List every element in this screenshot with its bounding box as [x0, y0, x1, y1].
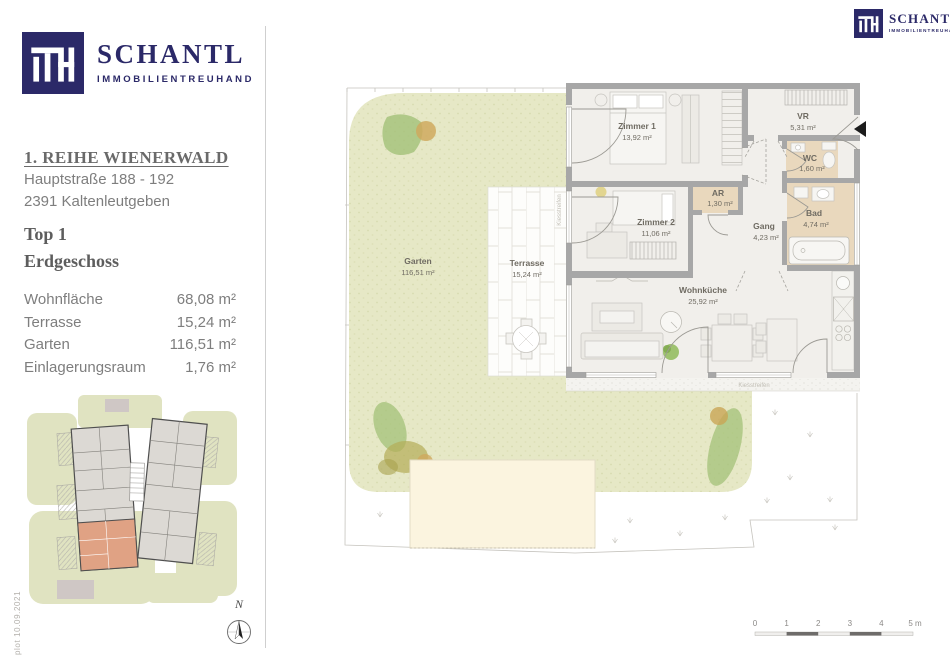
room-area-zimmer2: 11,06 m²	[641, 229, 671, 238]
site-building-left	[71, 425, 138, 571]
area-label: Einlagerungsraum	[24, 357, 185, 380]
gravel-strip-label: Kiesstreifen	[738, 383, 769, 389]
area-label: Terrasse	[24, 312, 177, 335]
address-block: Hauptstraße 188 - 192 2391 Kaltenleutgeb…	[24, 169, 174, 213]
room-area-vr: 5,31 m²	[790, 123, 816, 132]
room-label-zimmer1: Zimmer 1	[618, 121, 656, 131]
ith-monogram-small-icon	[854, 9, 883, 38]
area-label: Wohnfläche	[24, 289, 177, 312]
address-line1: Hauptstraße 188 - 192	[24, 169, 174, 191]
room-label-gang: Gang	[753, 221, 775, 231]
room-label-vr: VR	[797, 111, 809, 121]
room-label-ar: AR	[712, 188, 724, 198]
address-line2: 2391 Kaltenleutgeben	[24, 191, 174, 213]
unit-title: Top 1	[24, 221, 119, 248]
site-highlighted-unit	[78, 519, 138, 571]
scale-unit-label: 5 m	[908, 619, 922, 628]
room-label-terrasse: Terrasse	[510, 258, 545, 268]
room-area-wohnkueche: 25,92 m²	[688, 297, 718, 306]
area-row-einlagerungsraum: Einlagerungsraum 1,76 m²	[24, 357, 236, 380]
plot-date-note: plot 10.09.2021	[13, 591, 22, 655]
brand-logo: SCHANTL IMMOBILIENTREUHAND	[22, 32, 254, 94]
area-value: 1,76 m²	[185, 357, 236, 380]
scale-tick-1: 1	[784, 619, 789, 628]
floor-title: Erdgeschoss	[24, 248, 119, 275]
area-value: 15,24 m²	[177, 312, 236, 335]
room-area-zimmer1: 13,92 m²	[622, 133, 652, 142]
brand-name-small: SCHANTL	[889, 12, 950, 25]
room-label-wc: WC	[803, 153, 817, 163]
floor-plan: Kiesstreifen	[330, 75, 950, 655]
area-table: Wohnfläche 68,08 m² Terrasse 15,24 m² Ga…	[24, 289, 236, 379]
unit-block: Top 1 Erdgeschoss	[24, 221, 119, 275]
room-area-terrasse: 15,24 m²	[512, 270, 542, 279]
ith-monogram-icon	[22, 32, 84, 94]
area-value: 116,51 m²	[170, 334, 236, 357]
room-area-wc: 1,60 m²	[799, 164, 825, 173]
scale-tick-3: 3	[848, 619, 853, 628]
north-label: N	[234, 597, 244, 611]
facade-gravel-label: Kiesstreifen	[557, 194, 563, 225]
scale-tick-2: 2	[816, 619, 821, 628]
outbuilding	[410, 460, 595, 548]
area-row-terrasse: Terrasse 15,24 m²	[24, 312, 236, 335]
column-divider	[265, 26, 266, 648]
room-label-zimmer2: Zimmer 2	[637, 217, 675, 227]
area-label: Garten	[24, 334, 170, 357]
scale-tick-0: 0	[753, 619, 758, 628]
area-row-garten: Garten 116,51 m²	[24, 334, 236, 357]
site-stairs	[130, 463, 145, 501]
gravel-strip: Kiesstreifen	[566, 378, 860, 391]
brand-tagline-small: IMMOBILIENTREUHAND	[889, 28, 950, 33]
terrace-area	[488, 187, 567, 376]
room-area-ar: 1,30 m²	[707, 199, 733, 208]
brand-tagline: IMMOBILIENTREUHAND	[97, 74, 254, 85]
brand-name: SCHANTL	[97, 41, 254, 68]
expose-page: SCHANTL IMMOBILIENTREUHAND SCHANTL IMMOB…	[0, 0, 950, 671]
scale-bar: 0 1 2 3 4 5 m	[753, 619, 922, 636]
brand-logo-small: SCHANTL IMMOBILIENTREUHAND	[854, 9, 950, 38]
site-plan	[26, 393, 238, 608]
scale-tick-4: 4	[879, 619, 884, 628]
area-value: 68,08 m²	[177, 289, 236, 312]
compass-icon	[228, 621, 251, 644]
area-row-wohnflaeche: Wohnfläche 68,08 m²	[24, 289, 236, 312]
room-label-garten: Garten	[404, 256, 431, 266]
project-title: 1. REIHE WIENERWALD	[24, 148, 229, 168]
room-label-bad: Bad	[806, 208, 822, 218]
room-area-garten: 116,51 m²	[401, 268, 435, 277]
room-area-gang: 4,23 m²	[753, 233, 779, 242]
room-area-bad: 4,74 m²	[803, 220, 829, 229]
apartment	[566, 83, 866, 378]
north-indicator: N	[221, 596, 257, 655]
room-label-wohnkueche: Wohnküche	[679, 285, 727, 295]
